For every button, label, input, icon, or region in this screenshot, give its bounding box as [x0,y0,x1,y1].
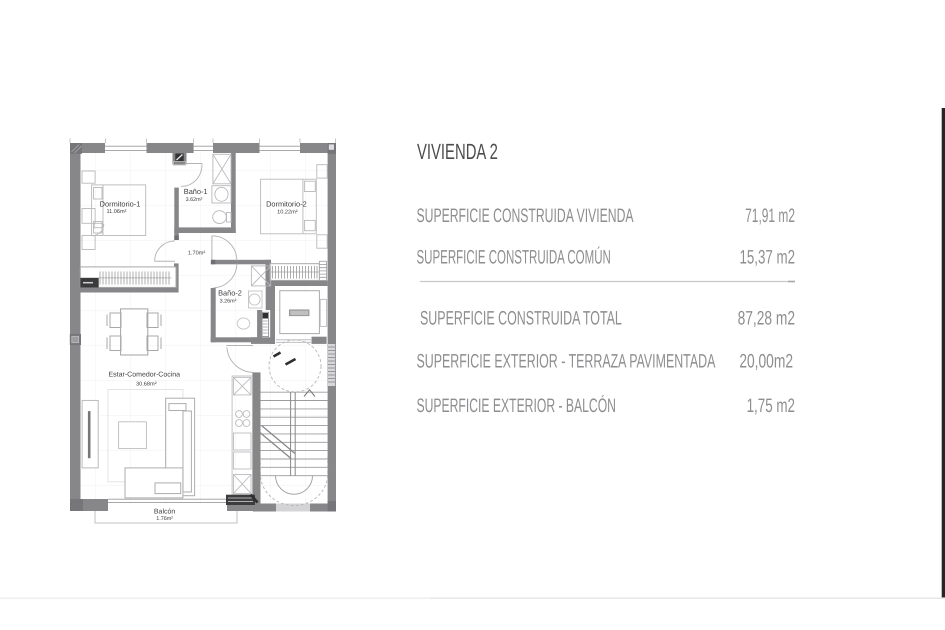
svg-text:1.76m²: 1.76m² [156,516,173,522]
svg-text:3.62m²: 3.62m² [186,197,203,203]
svg-text:15,37 m2: 15,37 m2 [739,247,795,269]
svg-text:30.68m²: 30.68m² [136,382,157,388]
svg-text:71,91 m2: 71,91 m2 [745,205,795,227]
svg-text:VIVIENDA 2: VIVIENDA 2 [417,139,498,164]
svg-text:SUPERFICIE CONSTRUIDA COMÚN: SUPERFICIE CONSTRUIDA COMÚN [417,247,611,269]
svg-text:Estar-Comedor-Cocina: Estar-Comedor-Cocina [109,371,181,379]
svg-text:10.22m²: 10.22m² [277,210,298,216]
svg-text:87,28 m2: 87,28 m2 [738,308,795,330]
svg-text:1,75 m2: 1,75 m2 [747,395,795,417]
svg-text:SUPERFICIE EXTERIOR - BALCÓN: SUPERFICIE EXTERIOR - BALCÓN [417,395,616,417]
svg-text:11.06m²: 11.06m² [106,209,126,215]
svg-text:20,00m2: 20,00m2 [739,351,793,373]
svg-text:SUPERFICIE CONSTRUIDA VIVIENDA: SUPERFICIE CONSTRUIDA VIVIENDA [417,205,634,227]
svg-text:Balcón: Balcón [154,508,176,516]
svg-text:3.26m²: 3.26m² [220,298,237,304]
svg-text:Dormitorio-1: Dormitorio-1 [100,199,141,208]
svg-text:Baño-1: Baño-1 [184,187,208,196]
svg-text:Dormitorio-2: Dormitorio-2 [266,199,307,208]
svg-text:Baño-2: Baño-2 [218,288,242,297]
svg-text:SUPERFICIE CONSTRUIDA TOTAL: SUPERFICIE CONSTRUIDA TOTAL [420,308,622,330]
svg-text:SUPERFICIE EXTERIOR - TERRAZA: SUPERFICIE EXTERIOR - TERRAZA PAVIMENTAD… [417,351,716,373]
svg-text:1.70m²: 1.70m² [188,251,206,257]
